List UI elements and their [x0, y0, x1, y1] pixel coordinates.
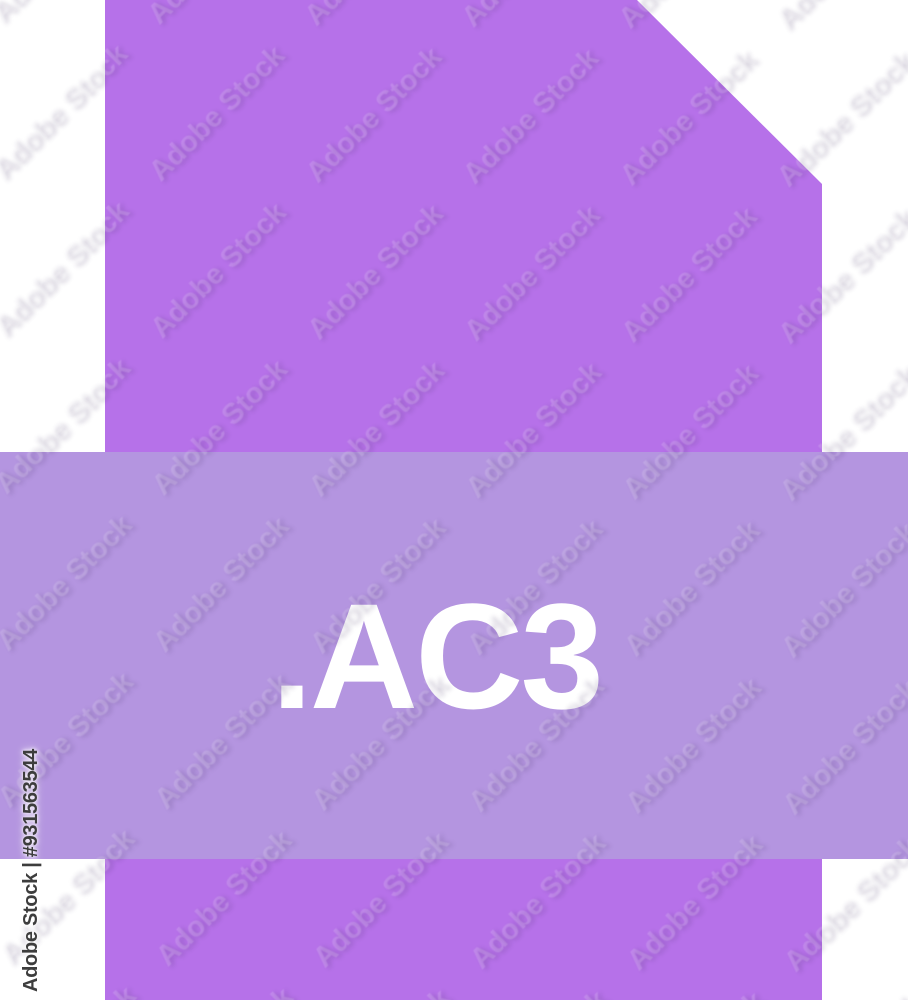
file-extension-label: .AC3 [271, 581, 601, 731]
file-extension-banner: .AC3 [0, 452, 908, 859]
watermark-asset-id-label: Adobe Stock | #931563544 [20, 749, 43, 992]
stock-preview-image: .AC3 Adobe StockAdobe StockAdobe StockAd… [0, 0, 908, 1000]
watermark-text: Adobe Stock [770, 0, 908, 37]
